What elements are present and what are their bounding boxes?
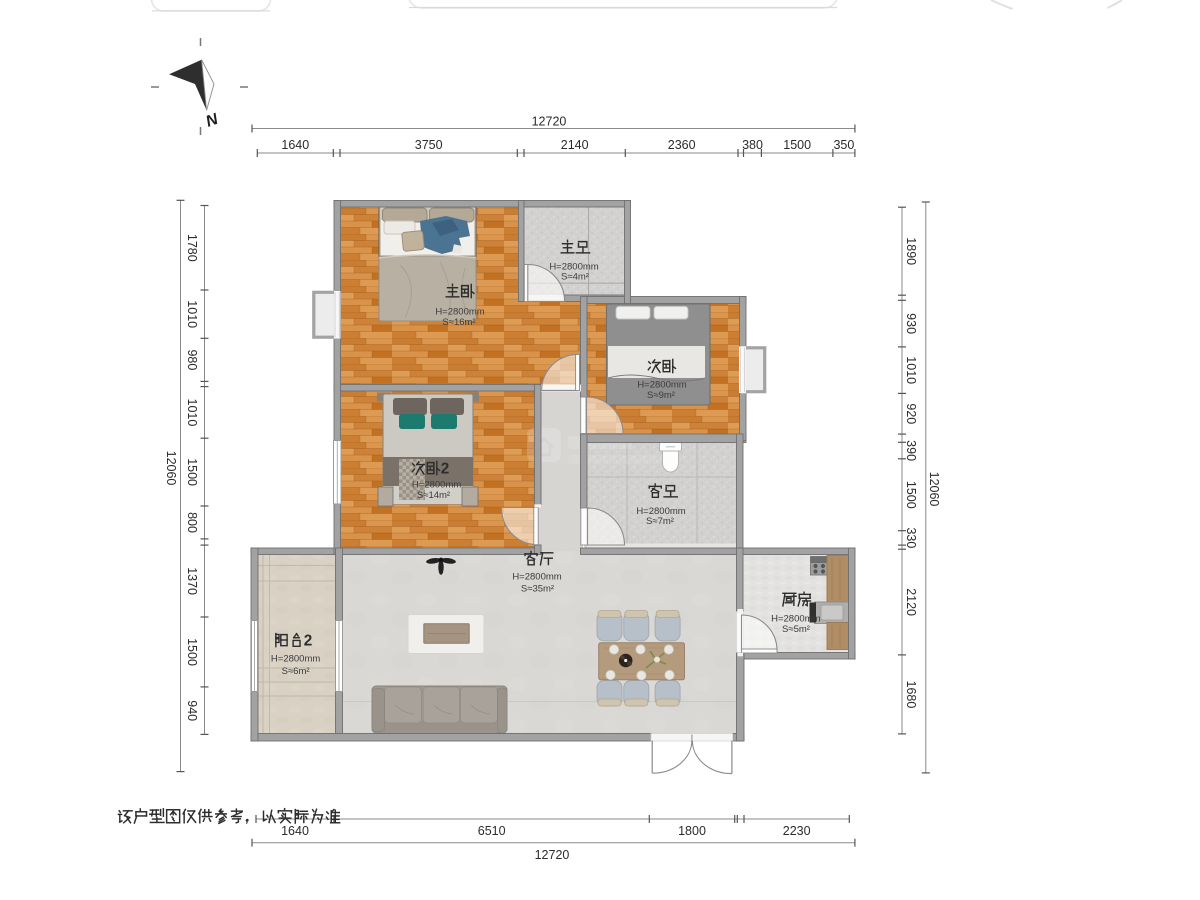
svg-text:1370: 1370 — [185, 567, 199, 595]
svg-text:1010: 1010 — [904, 356, 918, 384]
svg-text:S≈9m²: S≈9m² — [647, 390, 675, 401]
svg-text:2230: 2230 — [783, 824, 811, 838]
svg-text:3750: 3750 — [415, 138, 443, 152]
svg-text:2120: 2120 — [904, 588, 918, 616]
svg-text:330: 330 — [904, 527, 918, 548]
svg-text:2140: 2140 — [561, 138, 589, 152]
svg-text:2: 2 — [441, 460, 450, 477]
svg-text:1500: 1500 — [185, 638, 199, 666]
svg-text:S≈35m²: S≈35m² — [521, 583, 554, 594]
svg-text:1010: 1010 — [185, 398, 199, 426]
svg-text:S≈16m²: S≈16m² — [442, 317, 475, 328]
svg-text:H=2800mm: H=2800mm — [637, 379, 686, 390]
svg-text:920: 920 — [904, 403, 918, 424]
svg-text:940: 940 — [185, 700, 199, 721]
svg-text:2: 2 — [304, 632, 313, 649]
svg-text:930: 930 — [904, 313, 918, 334]
svg-text:1500: 1500 — [185, 458, 199, 486]
svg-text:1890: 1890 — [904, 237, 918, 265]
svg-text:S≈6m²: S≈6m² — [282, 666, 310, 677]
svg-text:6510: 6510 — [478, 824, 506, 838]
svg-text:H=2800mm: H=2800mm — [412, 480, 461, 491]
svg-text:1640: 1640 — [281, 138, 309, 152]
svg-text:1680: 1680 — [904, 680, 918, 708]
svg-text:12720: 12720 — [535, 848, 570, 862]
svg-text:H=2800mm: H=2800mm — [271, 654, 320, 665]
svg-text:1500: 1500 — [904, 481, 918, 509]
svg-text:S≈4m²: S≈4m² — [561, 271, 589, 282]
svg-text:350: 350 — [833, 138, 854, 152]
svg-text:12060: 12060 — [927, 472, 941, 507]
svg-text:980: 980 — [185, 349, 199, 370]
svg-text:1780: 1780 — [185, 234, 199, 262]
svg-text:2360: 2360 — [668, 138, 696, 152]
svg-text:S≈7m²: S≈7m² — [646, 516, 674, 527]
svg-text:800: 800 — [185, 512, 199, 533]
svg-text:S≈5m²: S≈5m² — [782, 624, 810, 635]
svg-text:1800: 1800 — [678, 824, 706, 838]
svg-text:S≈14m²: S≈14m² — [417, 490, 450, 501]
svg-text:390: 390 — [904, 440, 918, 461]
svg-text:1640: 1640 — [281, 824, 309, 838]
svg-text:1010: 1010 — [185, 300, 199, 328]
svg-text:H=2800mm: H=2800mm — [435, 306, 484, 317]
svg-text:H=2800mm: H=2800mm — [512, 571, 561, 582]
svg-text:1500: 1500 — [783, 138, 811, 152]
svg-text:380: 380 — [742, 138, 763, 152]
svg-text:12060: 12060 — [164, 451, 178, 486]
svg-text:12720: 12720 — [532, 114, 567, 128]
